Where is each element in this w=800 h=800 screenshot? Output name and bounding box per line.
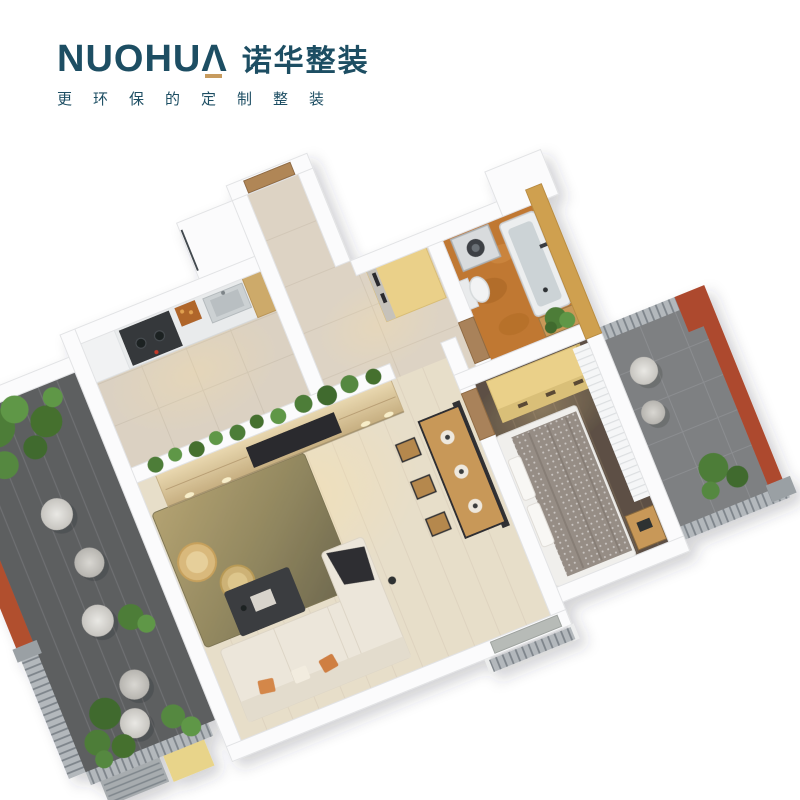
- page: NUOHUΛ 诺华整装 更环保的定制整装: [0, 0, 800, 800]
- floorplan-render: [0, 0, 800, 800]
- building: [0, 31, 800, 800]
